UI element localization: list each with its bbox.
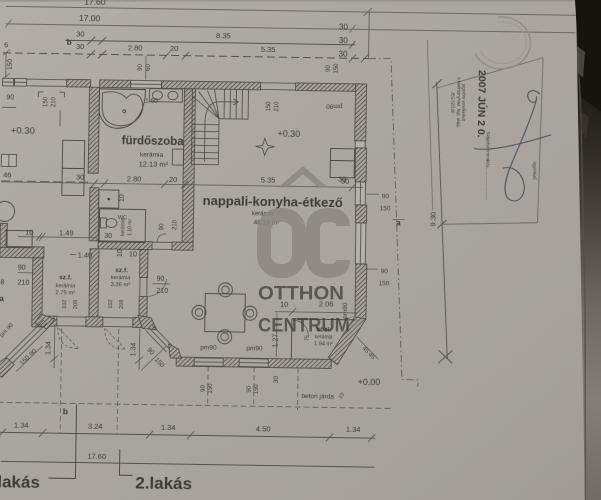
svg-text:102: 102 [62, 300, 68, 309]
svg-text:209: 209 [119, 300, 125, 309]
svg-text:17.00: 17.00 [79, 13, 101, 23]
svg-text:2007 JÚN 2 0.: 2007 JÚN 2 0. [475, 70, 489, 138]
svg-text:kerámia: kerámia [120, 218, 126, 236]
svg-text:30: 30 [76, 29, 84, 38]
svg-text:1.34: 1.34 [130, 342, 137, 356]
svg-text:8: 8 [0, 279, 4, 286]
svg-text:pm90: pm90 [246, 345, 263, 352]
svg-text:1.40: 1.40 [78, 251, 93, 260]
svg-text:90: 90 [381, 268, 389, 275]
svg-text:90: 90 [6, 94, 14, 101]
svg-text:150: 150 [208, 383, 214, 394]
svg-text:10: 10 [119, 194, 126, 202]
svg-text:10: 10 [25, 228, 33, 237]
svg-text:5.35: 5.35 [261, 45, 276, 54]
svg-text:b: b [63, 406, 68, 416]
svg-text:46: 46 [3, 170, 11, 179]
svg-text:1.94 m²: 1.94 m² [314, 341, 333, 347]
svg-text:nappali-konyha-étkező: nappali-konyha-étkező [203, 193, 343, 210]
svg-text:1.10 m²: 1.10 m² [127, 218, 133, 235]
svg-text:30: 30 [104, 233, 112, 240]
svg-text:4.50: 4.50 [256, 424, 271, 433]
svg-text:+0.30: +0.30 [277, 129, 300, 139]
svg-text:17.60: 17.60 [87, 452, 106, 461]
svg-text:pm90: pm90 [326, 102, 343, 109]
svg-text:5.35: 5.35 [261, 175, 276, 184]
svg-text:1.34: 1.34 [346, 425, 361, 434]
svg-text:102: 102 [108, 299, 114, 308]
svg-text:30: 30 [338, 175, 346, 184]
svg-text:sz.f.: sz.f. [59, 274, 72, 281]
svg-text:kerámia: kerámia [140, 151, 164, 158]
svg-text:1.34: 1.34 [161, 423, 176, 432]
svg-text:9.30: 9.30 [428, 212, 437, 227]
svg-text:b: b [67, 38, 72, 47]
svg-text:150: 150 [378, 280, 389, 287]
svg-text:210: 210 [51, 96, 57, 107]
svg-text:10: 10 [129, 249, 137, 258]
svg-text:30: 30 [76, 172, 84, 181]
svg-text:+0.00: +0.00 [357, 377, 380, 387]
svg-text:OTTHON: OTTHON [258, 284, 344, 305]
svg-text:90: 90 [157, 276, 165, 283]
svg-text:pm90: pm90 [200, 344, 217, 351]
svg-text:1.34: 1.34 [14, 421, 29, 430]
svg-text:209: 209 [73, 300, 79, 309]
svg-text:3.36 m²: 3.36 m² [111, 282, 131, 288]
svg-text:a: a [0, 293, 4, 303]
svg-text:a kiadmányhitel. fogl. alapj.: a kiadmányhitel. fogl. alapj. [456, 77, 462, 128]
svg-text:210: 210 [156, 288, 168, 295]
svg-text:30: 30 [273, 376, 280, 384]
svg-text:90: 90 [159, 223, 165, 230]
svg-text:210: 210 [18, 280, 30, 287]
svg-text:8.35: 8.35 [216, 31, 231, 40]
svg-text:sz.f.: sz.f. [115, 267, 128, 274]
svg-text:CENTRUM: CENTRUM [258, 315, 350, 337]
svg-text:150: 150 [266, 101, 272, 112]
svg-text:90: 90 [18, 265, 26, 272]
svg-text:2.75 m²: 2.75 m² [55, 290, 75, 296]
svg-text:lakás: lakás [0, 472, 40, 492]
svg-text:150: 150 [334, 63, 340, 74]
svg-text:30: 30 [76, 42, 84, 51]
svg-text:+0.30: +0.30 [11, 125, 35, 136]
svg-text:JEGYZŐJE: JEGYZŐJE [450, 92, 455, 114]
svg-text:20: 20 [170, 44, 178, 53]
svg-text:10: 10 [117, 249, 124, 257]
svg-text:150: 150 [7, 59, 14, 70]
svg-text:20: 20 [169, 175, 177, 184]
svg-text:1.60: 1.60 [145, 98, 158, 105]
svg-text:12.13 m²: 12.13 m² [138, 159, 168, 168]
svg-text:kerámia: kerámia [56, 283, 77, 289]
svg-text:2.lakás: 2.lakás [135, 473, 192, 493]
svg-text:2.80: 2.80 [128, 43, 143, 52]
svg-text:1.49: 1.49 [59, 228, 74, 237]
svg-text:30: 30 [339, 23, 349, 32]
svg-text:150: 150 [254, 384, 260, 395]
svg-text:ügyintéző: ügyintéző [532, 162, 537, 181]
svg-text:90: 90 [247, 385, 253, 392]
svg-text:30: 30 [339, 36, 349, 45]
svg-text:6: 6 [4, 42, 8, 49]
svg-text:jogerőre emelkedett: jogerőre emelkedett [461, 83, 467, 122]
svg-text:210: 210 [274, 101, 280, 112]
svg-text:fürdőszoba: fürdőszoba [122, 135, 185, 148]
svg-text:1.34: 1.34 [45, 341, 52, 355]
svg-text:90: 90 [138, 63, 144, 70]
svg-text:17.60: 17.60 [84, 0, 106, 7]
svg-text:3.24: 3.24 [88, 422, 103, 431]
svg-text:beton járda: beton járda [301, 393, 334, 401]
svg-text:150: 150 [380, 205, 391, 212]
svg-text:90: 90 [382, 193, 390, 200]
svg-text:60: 60 [146, 64, 152, 71]
svg-text:210: 210 [172, 219, 178, 230]
svg-text:2.80: 2.80 [127, 174, 142, 183]
svg-text:30: 30 [339, 50, 349, 59]
svg-text:90: 90 [326, 64, 332, 71]
svg-text:kerámia: kerámia [111, 275, 132, 281]
svg-text:150: 150 [43, 96, 49, 107]
svg-text:90: 90 [201, 384, 207, 391]
